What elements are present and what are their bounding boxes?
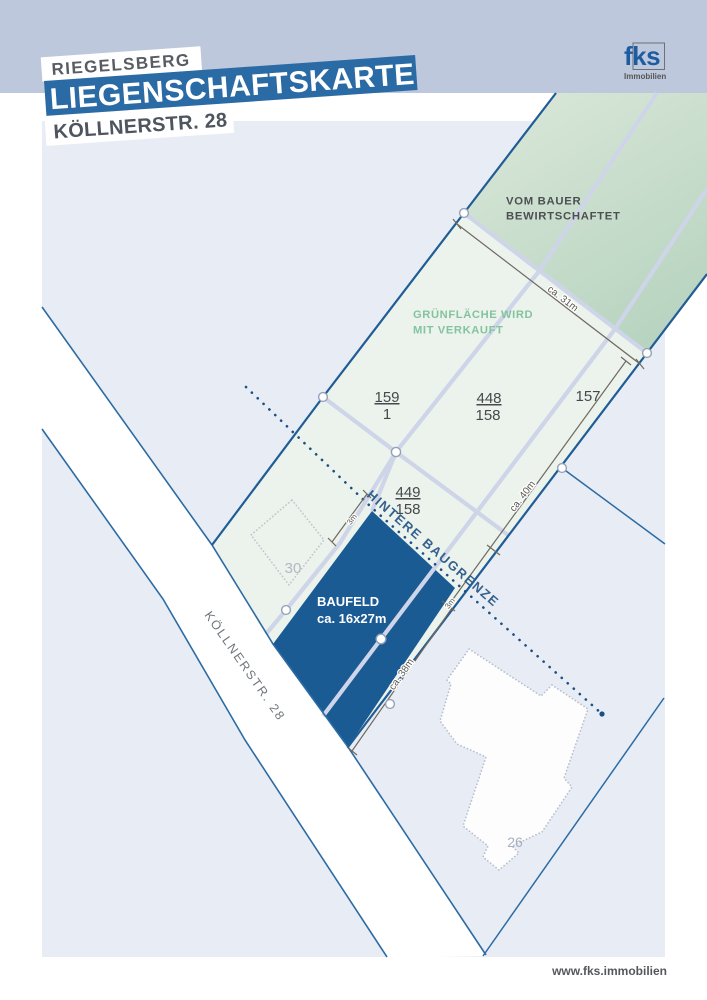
svg-text:30: 30 <box>285 560 302 577</box>
svg-text:MIT VERKAUFT: MIT VERKAUFT <box>413 325 503 337</box>
svg-text:158: 158 <box>475 407 500 424</box>
svg-text:159: 159 <box>374 389 399 406</box>
svg-text:Immobilien: Immobilien <box>624 72 666 81</box>
svg-text:BEWIRTSCHAFTET: BEWIRTSCHAFTET <box>506 211 621 223</box>
svg-text:VOM BAUER: VOM BAUER <box>506 196 581 208</box>
svg-text:ca. 16x27m: ca. 16x27m <box>317 611 386 626</box>
svg-text:www.fks.immobilien: www.fks.immobilien <box>551 964 667 978</box>
svg-text:GRÜNFLÄCHE WIRD: GRÜNFLÄCHE WIRD <box>413 308 533 321</box>
svg-text:BAUFELD: BAUFELD <box>317 594 379 609</box>
svg-text:1: 1 <box>383 406 391 423</box>
svg-text:448: 448 <box>476 390 501 407</box>
svg-text:26: 26 <box>507 834 523 850</box>
svg-text:449: 449 <box>395 484 420 501</box>
svg-text:157: 157 <box>575 388 600 405</box>
svg-text:fks: fks <box>624 41 660 71</box>
